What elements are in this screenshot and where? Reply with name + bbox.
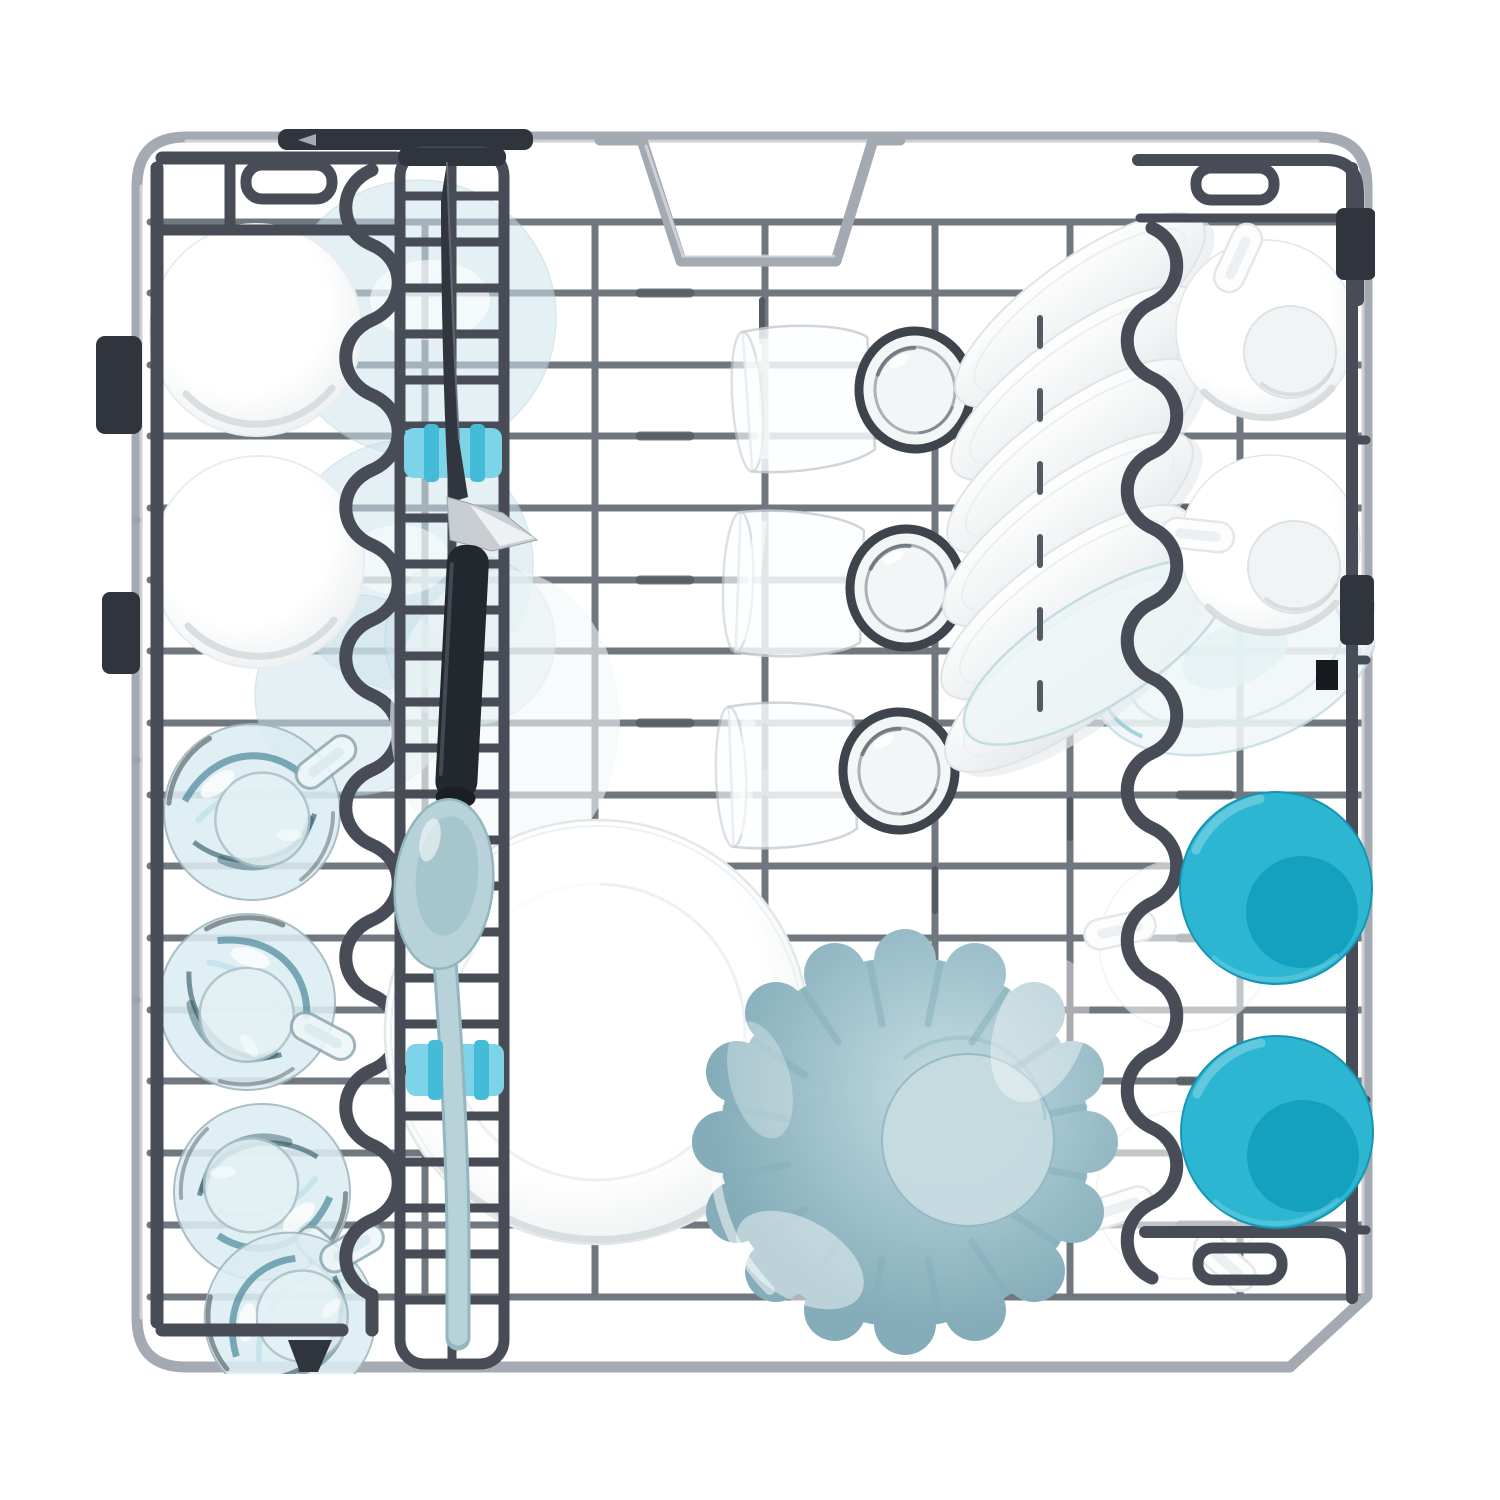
rack-hinge [102,592,140,674]
rack-clip-block [1336,208,1376,280]
fluted-bowl [692,929,1118,1355]
drinking-glass [721,509,965,662]
rack-clip-block [1340,575,1374,645]
margin-right [1375,0,1500,1500]
drinking-glasses [714,314,976,850]
white-cup [1176,240,1356,420]
rack-latch-detail [1316,660,1338,690]
white-bowl [152,456,364,668]
teal-cup [1181,1036,1373,1228]
drinking-glass [714,696,958,849]
frame-cap [278,129,533,150]
teal-cup [1180,792,1372,984]
white-bowl [150,224,362,436]
dishwasher-rack-photo [0,0,1500,1500]
scene [0,0,1500,1500]
margin-bottom [0,1374,1500,1500]
rack-hinge [96,336,142,434]
